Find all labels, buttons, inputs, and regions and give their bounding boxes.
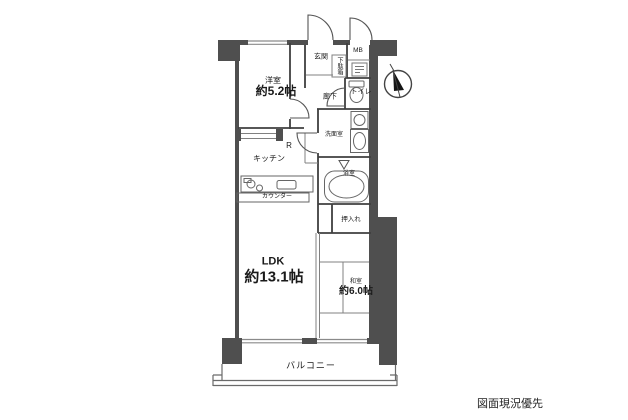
shoe-cabinet-label: 下駄箱 xyxy=(336,57,342,75)
kitchen-label: キッチン xyxy=(253,155,285,163)
bedroom-size-label: 約5.2帖 xyxy=(256,85,297,97)
floorplan-drawing xyxy=(0,0,628,420)
ldk-name-label: LDK xyxy=(262,257,285,268)
meter-box-icon xyxy=(352,63,367,76)
ldk-size-label: 約13.1帖 xyxy=(244,270,303,285)
balcony-label: バルコニー xyxy=(286,362,336,371)
north-compass-icon xyxy=(385,64,412,98)
closet-label: 押入れ xyxy=(341,217,361,224)
washbasin-icon xyxy=(351,130,369,153)
entrance-label: 玄関 xyxy=(314,54,328,61)
hallway-label: 廊下 xyxy=(323,94,337,101)
folding-door-icon xyxy=(339,161,349,170)
washroom-label: 洗面室 xyxy=(325,132,343,138)
bedroom-door-arc xyxy=(290,99,309,118)
japanese-room-name-label: 和室 xyxy=(350,279,362,285)
ldk-door-arc xyxy=(297,133,317,153)
meter-box-label: MB xyxy=(353,48,363,55)
meter-box-door-arc xyxy=(350,18,372,40)
bathroom-label: 浴室 xyxy=(343,171,355,177)
stove-burners-icon xyxy=(244,179,263,192)
sink-icon xyxy=(277,181,296,190)
floorplan-canvas: 洋室 約5.2帖 玄関 下駄箱 MB トイレ 廊下 洗面室 浴室 R キッチン … xyxy=(0,0,628,420)
counter-label: カウンター xyxy=(262,194,292,200)
drawing-status-note: 図面現況優先 xyxy=(477,399,543,410)
entrance-door-arc xyxy=(308,15,333,40)
refrigerator-label: R xyxy=(286,142,292,150)
washing-machine-icon xyxy=(351,112,368,129)
toilet-label: トイレ xyxy=(351,89,372,96)
japanese-room-size-label: 約6.0帖 xyxy=(339,287,373,297)
